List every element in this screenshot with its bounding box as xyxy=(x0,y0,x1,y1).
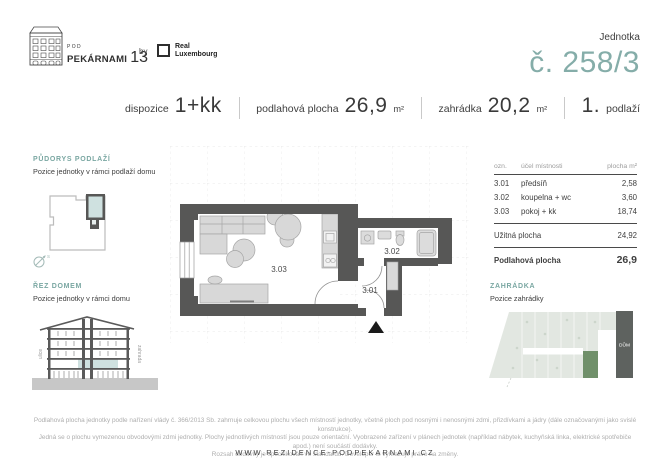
floor-slabs xyxy=(47,319,130,379)
building-logo-icon xyxy=(29,26,63,66)
dining-table xyxy=(275,214,301,240)
decor-item xyxy=(208,276,222,284)
kitchen-counter xyxy=(322,214,338,268)
real-luxembourg-name: Real Luxembourg xyxy=(175,43,217,58)
divider xyxy=(564,97,565,119)
section-sub-rez: Pozice jednotky v rámci domu xyxy=(33,294,130,303)
sofa xyxy=(200,216,265,234)
unit-garden-plot xyxy=(583,351,598,378)
shaft-panel xyxy=(387,262,398,290)
compass-north-letter: S xyxy=(47,254,50,259)
table-row: 3.01 předsíň 2,58 xyxy=(494,177,637,191)
website-link[interactable]: WWW.REZIDENCE-PODPEKARNAMI.CZ xyxy=(0,448,670,457)
unit-label: Jednotka xyxy=(529,32,640,43)
sink xyxy=(378,231,391,239)
unit-number: č. 258/3 xyxy=(529,46,640,80)
garden-side-label: zahrada xyxy=(136,345,142,363)
section-title-zahradka: ZAHRÁDKA xyxy=(490,283,535,290)
brand-text: POD PEKÁRNAMI 13 xyxy=(67,45,148,65)
usable-area-row: Užitná plocha 24,92 xyxy=(494,224,637,248)
garden-terrace-strip xyxy=(598,330,616,378)
spec-podlazi: 1. podlaží xyxy=(582,94,640,118)
window xyxy=(180,242,194,278)
specs-row: dispozice 1+kk podlahová plocha 26,9 m² … xyxy=(125,94,640,122)
section-sub-pudorys: Pozice jednotky v rámci podlaží domu xyxy=(33,167,155,176)
washing-machine xyxy=(361,231,374,244)
divider xyxy=(421,97,422,119)
side-table xyxy=(227,251,244,268)
floor-overview-plan: S xyxy=(30,183,140,271)
areas-table: ozn. účel místnosti plocha m² 3.01 předs… xyxy=(494,160,637,268)
divider xyxy=(239,97,240,119)
street-label: ulice xyxy=(38,349,44,360)
spec-zahradka: zahrádka 20,2 m² xyxy=(439,94,548,118)
unit-datasheet-page: POD PEKÁRNAMI 13 by Real Luxembourg Jedn… xyxy=(0,0,670,473)
room-label-living: 3.03 xyxy=(271,265,287,274)
room-label-hall: 3.01 xyxy=(362,286,378,295)
unit-header: Jednotka č. 258/3 xyxy=(529,32,640,80)
compass-icon xyxy=(34,255,46,267)
sofa-chaise xyxy=(200,234,227,254)
room-label-bath: 3.02 xyxy=(384,247,400,256)
table-body: 3.01 předsíň 2,58 3.02 koupelna + wc 3,6… xyxy=(494,177,637,224)
garden-path xyxy=(523,348,583,355)
main-floor-plan: 3.03 3.02 3.01 xyxy=(170,146,470,348)
boundary-extension-line xyxy=(507,378,511,387)
table-header: ozn. účel místnosti plocha m² xyxy=(494,160,637,175)
floor-area-row: Podlahová plocha 26,9 xyxy=(494,248,637,269)
house-label: DŮM xyxy=(619,342,630,349)
garden-plan: DŮM xyxy=(487,308,639,388)
spec-dispozice: dispozice 1+kk xyxy=(125,94,222,118)
rug-line xyxy=(230,301,254,303)
brand-name: PEKÁRNAMI xyxy=(67,55,127,65)
sideboard xyxy=(200,284,268,303)
building-section-diagram: ulice zahrada xyxy=(30,308,162,393)
by-label: by xyxy=(139,47,147,56)
section-sub-zahradka: Pozice zahrádky xyxy=(490,294,544,303)
section-title-rez: ŘEZ DOMEM xyxy=(33,283,82,290)
spec-podlahova-plocha: podlahová plocha 26,9 m² xyxy=(256,94,404,118)
footnote-line: Podlahová plocha jednotky podle nařízení… xyxy=(30,417,640,434)
ground xyxy=(32,378,158,390)
real-luxembourg-logo-icon xyxy=(157,44,170,57)
table-row: 3.03 pokoj + kk 18,74 xyxy=(494,205,637,219)
table-row: 3.02 koupelna + wc 3,60 xyxy=(494,191,637,205)
section-title-pudorys: PŮDORYS PODLAŽÍ xyxy=(33,156,111,163)
